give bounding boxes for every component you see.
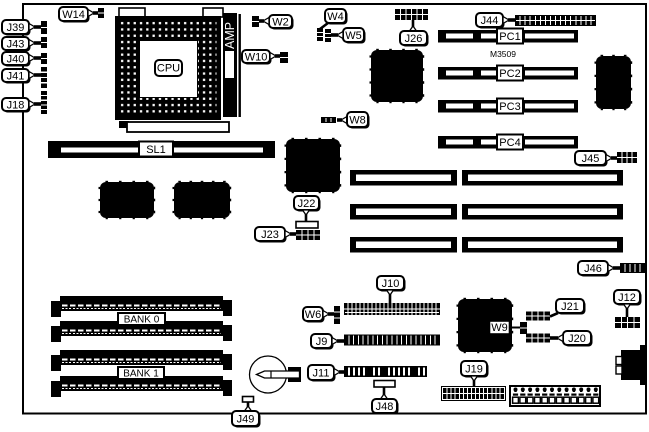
svg-text:J39: J39 bbox=[7, 22, 25, 34]
svg-text:W2: W2 bbox=[272, 16, 289, 28]
svg-text:J41: J41 bbox=[7, 70, 25, 82]
svg-text:PC4: PC4 bbox=[499, 137, 520, 149]
svg-text:J26: J26 bbox=[405, 33, 423, 45]
svg-text:W9: W9 bbox=[491, 322, 508, 334]
svg-text:BANK 0: BANK 0 bbox=[124, 315, 160, 326]
svg-text:SL1: SL1 bbox=[146, 144, 166, 156]
svg-text:J10: J10 bbox=[382, 278, 400, 290]
svg-text:BANK 1: BANK 1 bbox=[123, 369, 159, 380]
svg-text:J21: J21 bbox=[561, 301, 579, 313]
svg-text:AMP: AMP bbox=[223, 22, 237, 49]
svg-text:J44: J44 bbox=[481, 15, 499, 27]
svg-text:PC3: PC3 bbox=[499, 101, 520, 113]
svg-text:J49: J49 bbox=[237, 413, 255, 425]
svg-text:W8: W8 bbox=[349, 114, 366, 126]
svg-text:J11: J11 bbox=[313, 367, 330, 379]
svg-text:CPU: CPU bbox=[157, 63, 180, 75]
svg-text:M3509: M3509 bbox=[490, 49, 516, 59]
svg-text:PC1: PC1 bbox=[499, 31, 520, 43]
svg-text:J48: J48 bbox=[376, 401, 394, 413]
svg-text:W10: W10 bbox=[245, 51, 268, 63]
svg-text:J18: J18 bbox=[7, 99, 25, 111]
svg-text:J20: J20 bbox=[568, 333, 586, 345]
svg-text:J40: J40 bbox=[7, 53, 25, 65]
svg-text:W6: W6 bbox=[305, 309, 322, 321]
svg-text:J46: J46 bbox=[584, 263, 602, 275]
svg-text:J12: J12 bbox=[618, 292, 636, 304]
svg-text:W4: W4 bbox=[327, 11, 344, 23]
svg-text:J19: J19 bbox=[465, 363, 483, 375]
svg-text:W5: W5 bbox=[345, 30, 362, 42]
svg-text:J9: J9 bbox=[316, 336, 328, 348]
svg-text:J45: J45 bbox=[582, 153, 600, 165]
svg-text:J43: J43 bbox=[7, 38, 25, 50]
svg-text:PC2: PC2 bbox=[499, 68, 520, 80]
svg-text:J22: J22 bbox=[298, 198, 316, 210]
svg-text:J23: J23 bbox=[261, 229, 279, 241]
svg-text:W14: W14 bbox=[62, 9, 85, 21]
